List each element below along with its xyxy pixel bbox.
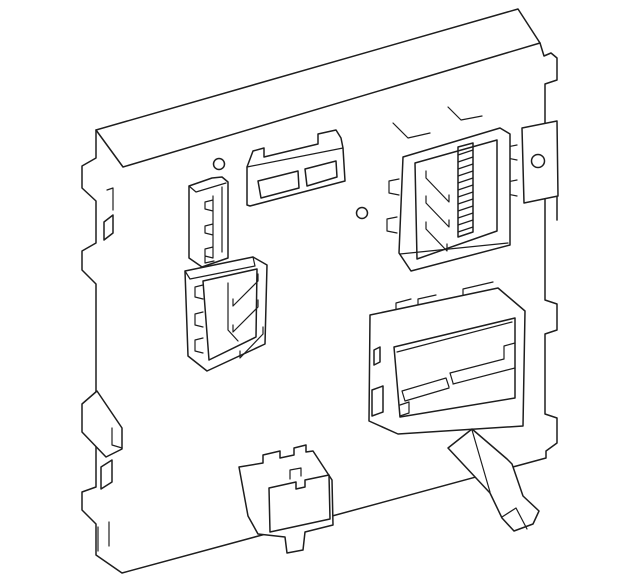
bracket-hole	[532, 155, 545, 168]
bottom-right-connector-body	[369, 288, 525, 434]
vertical-connector-left	[189, 177, 228, 267]
part-diagram	[0, 0, 640, 586]
illustration-stage	[0, 0, 640, 586]
screw-hole-center	[357, 208, 368, 219]
screw-hole-left	[214, 159, 225, 170]
